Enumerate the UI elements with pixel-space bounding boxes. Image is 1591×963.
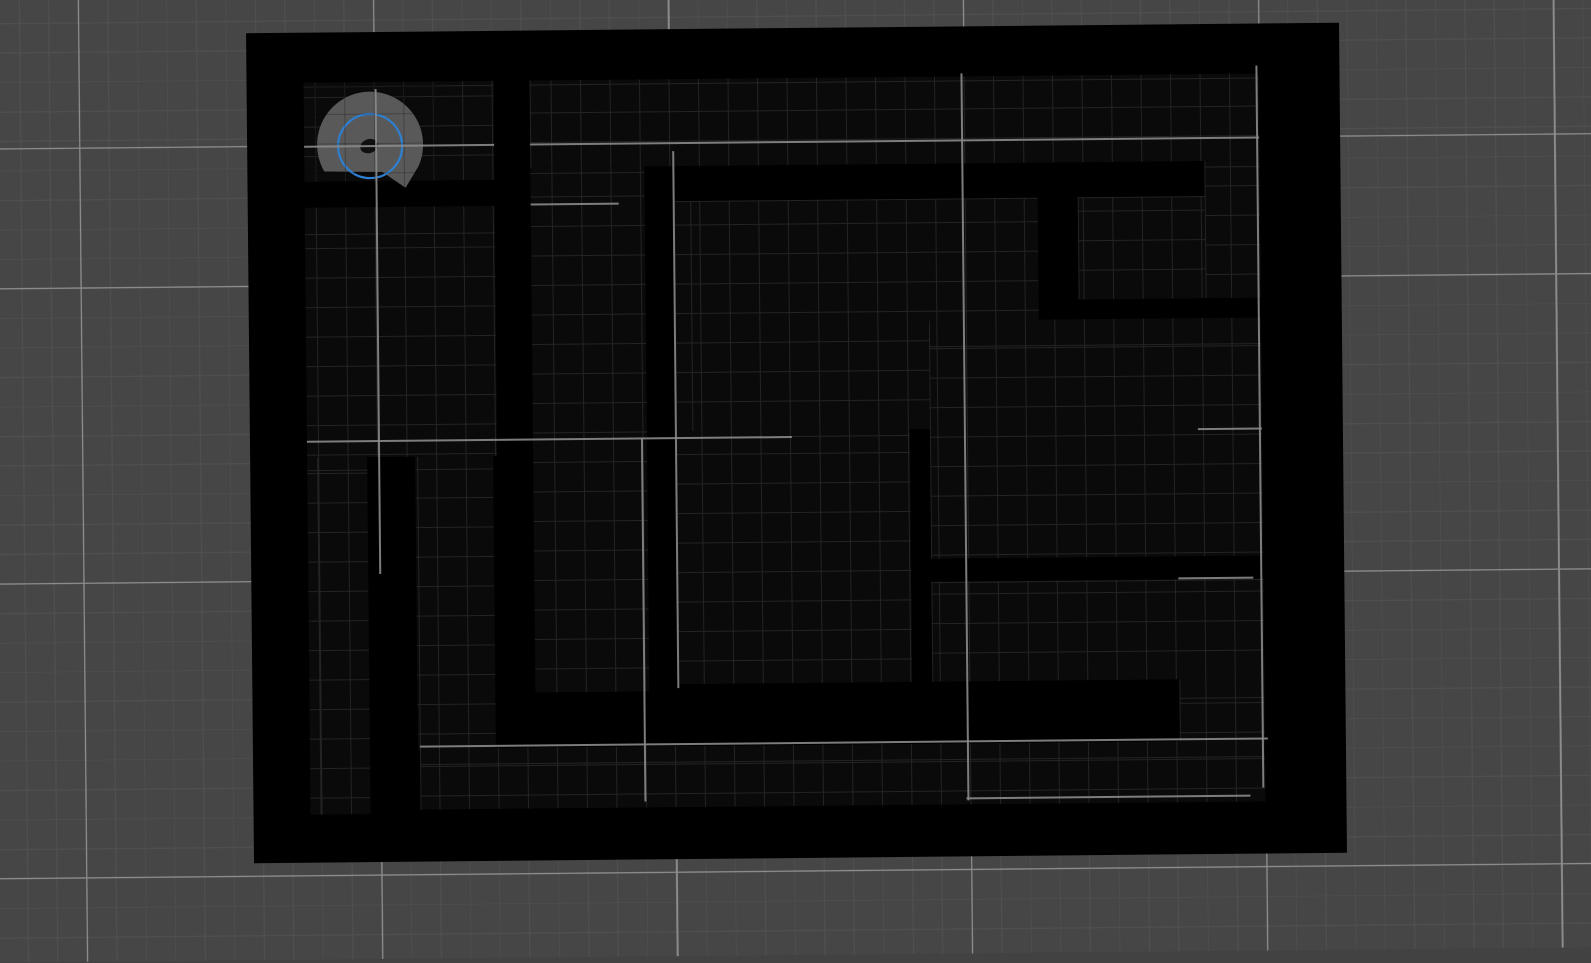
floor-region (677, 429, 912, 684)
floor-region (420, 741, 1266, 810)
floor-region (931, 579, 1264, 682)
floor-region (1204, 161, 1260, 299)
simulation-viewport[interactable] (0, 0, 1591, 893)
floor-region (415, 456, 496, 751)
floor-region (530, 74, 1260, 168)
floor-region (305, 206, 497, 458)
floor-region (307, 457, 370, 815)
floor-region (530, 166, 649, 692)
floor-region (1179, 679, 1265, 744)
maze-map (246, 23, 1347, 863)
grid-overlay (302, 77, 437, 194)
floor-region (929, 318, 1263, 559)
